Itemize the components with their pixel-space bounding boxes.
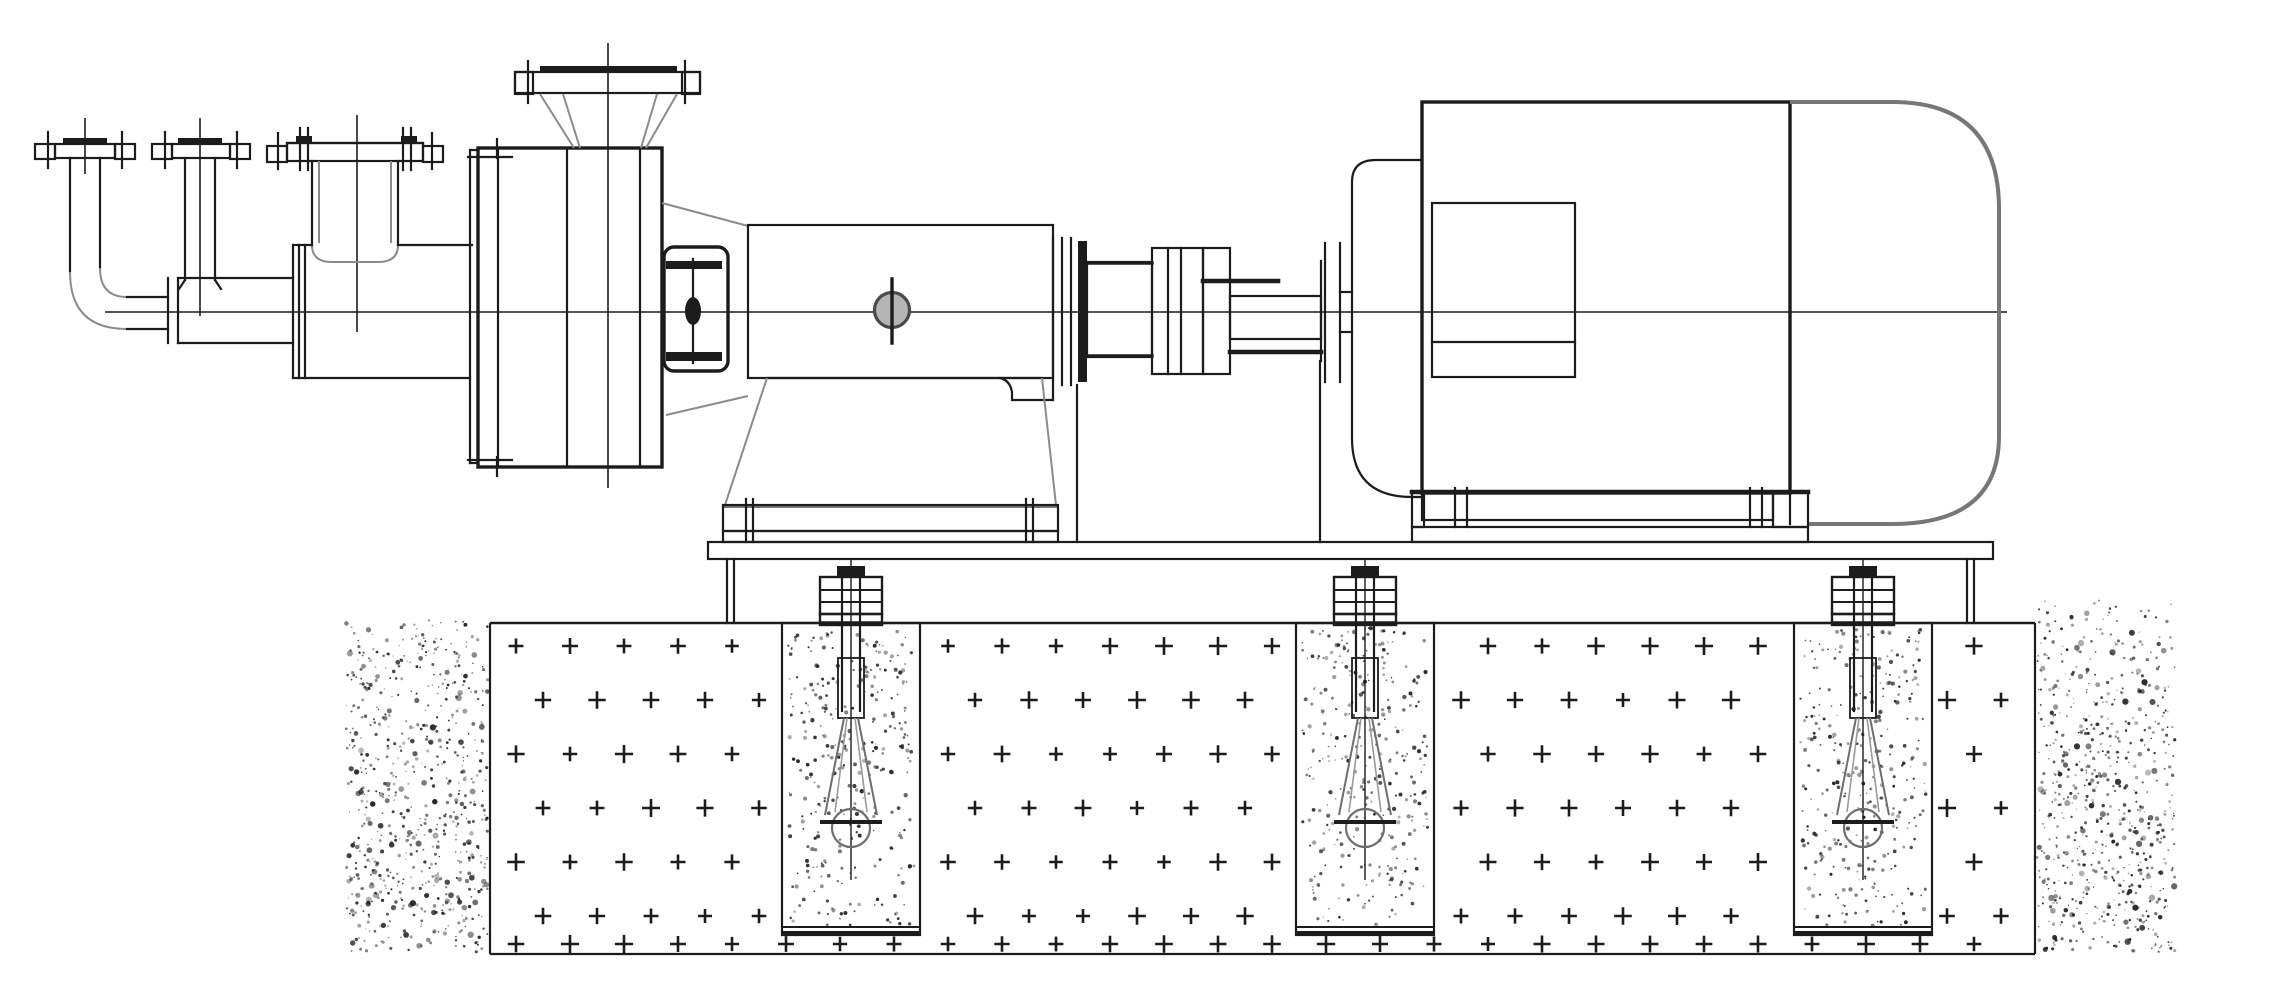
stipple-dot <box>2086 743 2092 749</box>
stipple-dot <box>350 732 352 734</box>
stipple-dot <box>425 882 427 884</box>
stipple-dot <box>455 825 458 828</box>
stipple-dot <box>2131 901 2134 904</box>
concrete-cross <box>670 746 687 763</box>
stipple-dot <box>1358 675 1362 679</box>
stipple-dot <box>2094 701 2095 702</box>
stipple-dot <box>369 683 373 687</box>
stipple-dot <box>1312 808 1316 812</box>
stipple-dot <box>1330 651 1334 655</box>
stipple-dot <box>478 914 480 916</box>
stipple-dot <box>852 784 856 788</box>
stipple-dot <box>1390 878 1394 882</box>
stipple-dot <box>477 944 479 946</box>
concrete-cross <box>1103 747 1117 761</box>
stipple-dot <box>424 822 427 825</box>
stipple-dot <box>843 813 845 815</box>
stipple-dot <box>881 689 883 691</box>
stipple-dot <box>808 876 811 879</box>
concrete-cross <box>994 638 1009 653</box>
stipple-dot <box>2115 914 2117 916</box>
stipple-dot <box>425 910 426 911</box>
stipple-dot <box>481 879 486 884</box>
stipple-dot <box>412 751 417 756</box>
stipple-dot <box>807 704 809 706</box>
stipple-dot <box>2125 720 2127 722</box>
stipple-dot <box>2054 774 2056 776</box>
stipple-dot <box>798 904 801 907</box>
stipple-dot <box>2043 852 2045 854</box>
stipple-dot <box>2090 724 2092 726</box>
stipple-dot <box>450 903 451 904</box>
concrete-cross <box>1049 639 1063 653</box>
motor-mount-pad <box>1412 527 1808 542</box>
stipple-dot <box>371 839 373 841</box>
stipple-dot <box>864 674 868 678</box>
stipple-dot <box>2114 790 2116 792</box>
stipple-dot <box>1842 904 1844 906</box>
stipple-dot <box>1333 666 1336 669</box>
stipple-dot <box>1382 629 1385 632</box>
stipple-dot <box>2129 822 2131 824</box>
stipple-dot <box>424 818 426 820</box>
stipple-dot <box>431 875 434 878</box>
stipple-dot <box>2072 784 2075 787</box>
stipple-dot <box>2088 783 2091 786</box>
stipple-dot <box>1896 827 1898 829</box>
stipple-dot <box>1819 643 1821 645</box>
stipple-dot <box>2083 897 2084 898</box>
concrete-cross <box>615 935 633 953</box>
stipple-dot <box>2145 919 2147 921</box>
stipple-dot <box>463 623 467 627</box>
stipple-dot <box>2122 698 2128 704</box>
stipple-dot <box>2125 939 2131 945</box>
stipple-dot <box>1362 905 1366 909</box>
stipple-dot <box>830 745 834 749</box>
concrete-cross <box>507 853 525 871</box>
stipple-dot <box>2093 921 2096 924</box>
stipple-dot <box>1844 845 1847 848</box>
stipple-dot <box>2074 774 2076 776</box>
stipple-dot <box>397 885 398 886</box>
stipple-dot <box>2081 850 2084 853</box>
stipple-dot <box>1411 819 1413 821</box>
stipple-dot <box>1393 631 1396 634</box>
stipple-dot <box>2069 939 2072 942</box>
stipple-dot <box>2107 941 2110 944</box>
stipple-dot <box>1423 670 1427 674</box>
stipple-dot <box>2084 821 2087 824</box>
stipple-dot <box>1324 656 1328 660</box>
stipple-dot <box>793 910 796 913</box>
foundation <box>344 560 2177 954</box>
stipple-dot <box>1903 798 1907 802</box>
stipple-dot <box>413 771 415 773</box>
elbow-outer-arc <box>70 272 127 329</box>
stipple-dot <box>346 853 351 858</box>
stipple-dot <box>2046 611 2049 614</box>
stipple-dot <box>1896 653 1899 656</box>
stipple-dot <box>2131 851 2134 854</box>
stipple-dot <box>821 864 825 868</box>
stipple-dot <box>2067 775 2070 778</box>
stipple-dot <box>389 677 391 679</box>
stipple-dot <box>468 687 470 689</box>
stipple-dot <box>897 655 899 657</box>
stipple-dot <box>361 682 364 685</box>
concrete-cross <box>670 936 686 952</box>
stipple-dot <box>2079 651 2082 654</box>
concrete-cross <box>617 639 632 654</box>
stipple-dot <box>2144 615 2147 618</box>
stipple-dot <box>441 909 443 911</box>
stipple-dot <box>806 864 810 868</box>
stipple-dot <box>387 745 389 747</box>
stipple-dot <box>1866 842 1869 845</box>
stipple-dot <box>1395 772 1398 775</box>
stipple-dot <box>1867 857 1870 860</box>
stipple-dot <box>1370 801 1372 803</box>
stipple-dot <box>480 947 483 950</box>
stipple-dot <box>2123 867 2125 869</box>
stipple-dot <box>2113 899 2115 901</box>
stipple-dot <box>1395 794 1397 796</box>
stipple-dot <box>2048 895 2054 901</box>
stipple-dot <box>438 686 439 687</box>
stipple-dot <box>897 694 899 696</box>
stipple-dot <box>1328 746 1330 748</box>
stipple-dot <box>390 841 393 844</box>
stipple-dot <box>1340 842 1344 846</box>
stipple-dot <box>789 652 793 656</box>
stipple-dot <box>2074 786 2077 789</box>
stipple-dot <box>1833 657 1836 660</box>
stipple-dot <box>364 940 366 942</box>
stipple-dot <box>1404 870 1407 873</box>
stipple-dot <box>1883 896 1885 898</box>
stipple-dot <box>372 869 378 875</box>
concrete-cross <box>1264 746 1280 762</box>
stipple-dot <box>476 845 479 848</box>
stipple-dot <box>1399 793 1403 797</box>
stipple-dot <box>2156 838 2159 841</box>
stipple-dot <box>827 681 830 684</box>
stipple-dot <box>2044 637 2047 640</box>
concrete-cross <box>1938 691 1956 709</box>
stipple-dot <box>379 891 382 894</box>
stipple-dot <box>2048 838 2050 840</box>
stipple-dot <box>837 756 840 759</box>
stipple-dot <box>2140 610 2142 612</box>
stipple-dot <box>1835 648 1836 649</box>
concrete-cross <box>1182 691 1200 709</box>
stipple-dot <box>1810 798 1812 800</box>
stipple-dot <box>2093 727 2096 730</box>
stipple-dot <box>1901 656 1903 658</box>
stipple-dot <box>1912 664 1914 666</box>
stipple-dot <box>900 727 903 730</box>
stipple-dot <box>1878 750 1881 753</box>
stipple-dot <box>2163 907 2165 909</box>
stipple-dot <box>2097 781 2100 784</box>
stipple-dot <box>479 759 482 762</box>
stipple-dot <box>1813 736 1817 740</box>
stipple-dot <box>455 939 457 941</box>
stipple-dot <box>873 644 877 648</box>
stipple-dot <box>2054 899 2057 902</box>
stipple-dot <box>2168 944 2170 946</box>
concrete-cross <box>1561 692 1578 709</box>
stipple-dot <box>487 857 488 858</box>
stipple-dot <box>1424 812 1427 815</box>
stipple-dot <box>398 665 401 668</box>
stipple-dot <box>1398 816 1401 819</box>
stipple-dot <box>2100 830 2103 833</box>
stipple-dot <box>808 646 810 648</box>
concrete-cross <box>642 799 660 817</box>
stipple-dot <box>463 945 466 948</box>
stipple-dot <box>814 693 817 696</box>
stipple-dot <box>372 648 374 650</box>
stipple-dot <box>2038 870 2040 872</box>
stipple-dot <box>863 797 865 799</box>
stipple-dot <box>356 873 359 876</box>
stipple-dot <box>1338 916 1341 919</box>
stipple-dot <box>2064 800 2070 806</box>
stipple-dot <box>908 743 910 745</box>
concrete-cross <box>615 853 632 870</box>
stipple-dot <box>1890 649 1893 652</box>
stipple-dot <box>1880 735 1883 738</box>
stipple-dot <box>821 754 824 757</box>
stipple-dot <box>358 809 360 811</box>
stipple-dot <box>458 654 461 657</box>
stipple-dot <box>2163 858 2165 860</box>
stipple-dot <box>2053 761 2056 764</box>
stipple-dot <box>377 897 380 900</box>
concrete-cross <box>941 747 955 761</box>
stipple-dot <box>1382 648 1386 652</box>
stipple-dot <box>1859 693 1861 695</box>
stipple-dot <box>1834 841 1838 845</box>
stipple-dot <box>365 714 367 716</box>
stipple-dot <box>2064 865 2066 867</box>
stipple-dot <box>408 903 413 908</box>
concrete-cross <box>1723 800 1739 816</box>
pipe-flare <box>179 280 185 289</box>
stipple-dot <box>390 947 392 949</box>
stipple-dot <box>467 820 470 823</box>
stipple-dot <box>876 898 879 901</box>
stipple-dot <box>431 663 434 666</box>
stipple-dot <box>1387 699 1389 701</box>
concrete-cross <box>1049 747 1063 761</box>
stipple-dot <box>455 621 457 623</box>
stipple-dot <box>411 638 413 640</box>
stipple-dot <box>2054 939 2057 942</box>
stipple-dot <box>2128 873 2130 875</box>
stipple-dot <box>1314 687 1316 689</box>
stipple-dot <box>2048 888 2050 890</box>
stipple-dot <box>475 950 478 953</box>
stipple-dot <box>2054 620 2056 622</box>
stipple-dot <box>1340 866 1343 869</box>
stipple-dot <box>897 806 901 810</box>
stipple-dot <box>413 914 416 917</box>
stipple-dot <box>2167 905 2168 906</box>
stipple-dot <box>2156 780 2158 782</box>
stipple-dot <box>2130 883 2133 886</box>
concrete-cross <box>752 693 766 707</box>
stipple-dot <box>2153 760 2156 763</box>
stipple-dot <box>1924 888 1927 891</box>
stipple-dot <box>1818 714 1820 716</box>
stipple-dot <box>823 859 826 862</box>
stipple-dot <box>466 851 468 853</box>
stipple-dot <box>2157 824 2159 826</box>
stipple-dot <box>1378 866 1381 869</box>
stipple-dot <box>1812 832 1816 836</box>
stipple-dot <box>853 910 855 912</box>
stipple-dot <box>1402 842 1406 846</box>
stipple-dot <box>383 879 386 882</box>
stipple-dot <box>2072 913 2075 916</box>
concrete-cross <box>778 936 794 952</box>
stipple-dot <box>872 721 874 723</box>
stipple-dot <box>2118 893 2120 895</box>
stipple-dot <box>372 634 373 635</box>
stipple-dot <box>900 836 903 839</box>
stipple-dot <box>791 885 794 888</box>
stipple-dot <box>1328 908 1330 910</box>
stipple-dot <box>2161 728 2164 731</box>
stipple-dot <box>1407 858 1409 860</box>
stipple-dot <box>2146 867 2149 870</box>
stipple-dot <box>1334 746 1336 748</box>
stipple-dot <box>364 866 367 869</box>
stipple-dot <box>2163 813 2166 816</box>
stipple-dot <box>1360 745 1362 747</box>
concrete-cross <box>941 937 956 952</box>
stipple-dot <box>424 834 426 836</box>
stipple-dot <box>2086 913 2087 914</box>
stipple-dot <box>462 709 467 714</box>
stipple-dot <box>1832 781 1836 785</box>
stipple-dot <box>2054 798 2057 801</box>
stipple-dot <box>2138 808 2141 811</box>
stipple-dot <box>1405 665 1408 668</box>
stipple-dot <box>875 743 877 745</box>
stipple-dot <box>2163 741 2166 744</box>
stipple-dot <box>1842 858 1846 862</box>
stipple-dot <box>471 778 473 780</box>
concrete-cross <box>535 908 552 925</box>
stipple-dot <box>2078 674 2083 679</box>
stipple-dot <box>820 875 822 877</box>
stipple-dot <box>471 672 473 674</box>
stipple-dot <box>375 674 380 679</box>
stipple-dot <box>410 739 415 744</box>
stipple-dot <box>461 769 465 773</box>
stipple-dot <box>1854 912 1857 915</box>
concrete-cross <box>1805 937 1820 952</box>
stipple-dot <box>1877 890 1879 892</box>
stipple-dot <box>2159 823 2162 826</box>
stipple-dot <box>1803 719 1806 722</box>
stipple-dot <box>1318 809 1321 812</box>
stipple-dot <box>1898 686 1900 688</box>
stipple-dot <box>424 893 429 898</box>
stipple-dot <box>2123 880 2125 882</box>
stipple-dot <box>365 806 367 808</box>
stipple-dot <box>1417 749 1421 753</box>
stipple-dot <box>2094 906 2096 908</box>
stipple-dot <box>441 912 444 915</box>
stipple-dot <box>902 680 905 683</box>
stipple-dot <box>2148 822 2151 825</box>
stipple-dot <box>2040 689 2042 691</box>
stipple-dot <box>447 729 450 732</box>
stipple-dot <box>482 885 485 888</box>
stipple-dot <box>1867 801 1870 804</box>
stipple-dot <box>830 631 833 634</box>
stipple-dot <box>355 862 357 864</box>
stipple-dot <box>2105 701 2107 703</box>
stipple-dot <box>485 817 488 820</box>
stipple-dot <box>1864 835 1868 839</box>
stipple-dot <box>388 726 390 728</box>
stipple-dot <box>351 710 353 712</box>
concrete-cross <box>1020 691 1037 708</box>
stipple-dot <box>1889 660 1893 664</box>
stipple-dot <box>1317 658 1319 660</box>
stipple-dot <box>472 663 474 665</box>
stipple-dot <box>1314 876 1316 878</box>
stipple-dot <box>2036 856 2039 859</box>
stipple-dot <box>1310 630 1314 634</box>
stipple-dot <box>2073 698 2074 699</box>
stipple-dot <box>817 831 819 833</box>
stipple-dot <box>1856 649 1859 652</box>
concrete-cross <box>1534 936 1551 953</box>
stipple-dot <box>426 736 428 738</box>
stipple-dot <box>1816 666 1819 669</box>
stipple-dot <box>2037 786 2043 792</box>
stipple-dot <box>2067 796 2069 798</box>
stipple-dot <box>1414 793 1417 796</box>
concrete-cross <box>1588 746 1604 762</box>
stipple-dot <box>817 785 821 789</box>
stipple-dot <box>2150 886 2151 887</box>
stipple-dot <box>843 911 847 915</box>
stipple-dot <box>2145 770 2151 776</box>
stipple-dot <box>403 932 409 938</box>
stipple-dot <box>2102 772 2107 777</box>
stipple-dot <box>1309 878 1313 882</box>
stipple-dot <box>454 798 458 802</box>
stipple-dot <box>1910 892 1913 895</box>
stipple-dot <box>2051 947 2054 950</box>
coupling-hub-flange <box>1203 248 1230 374</box>
stipple-dot <box>2041 850 2043 852</box>
stipple-dot <box>2064 851 2069 856</box>
stipple-dot <box>1917 630 1919 632</box>
stipple-dot <box>406 760 409 763</box>
stipple-dot <box>1834 742 1836 744</box>
stipple-dot <box>394 839 397 842</box>
concrete-cross <box>1938 799 1956 817</box>
